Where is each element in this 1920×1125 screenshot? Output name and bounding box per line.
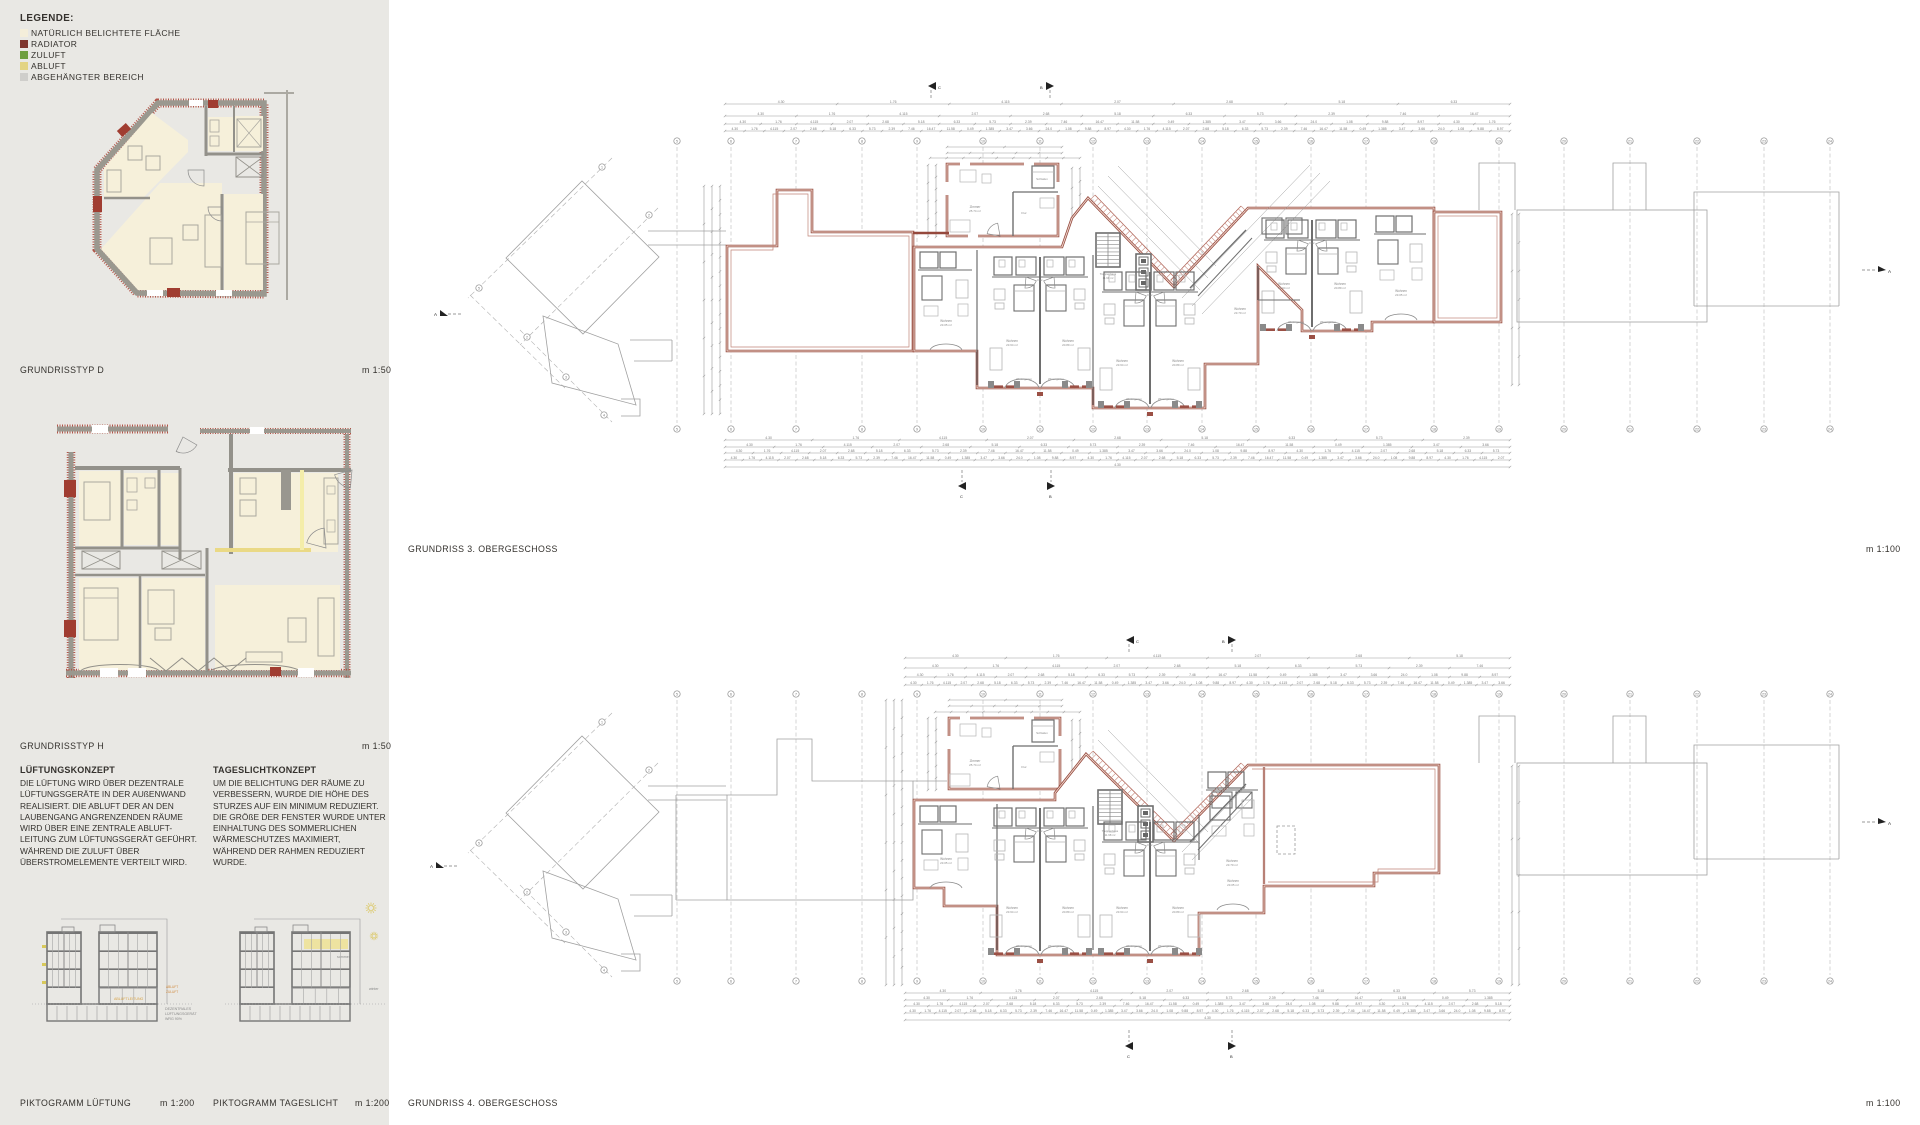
svg-text:16: 16 bbox=[1309, 692, 1313, 696]
svg-text:Schlafen: Schlafen bbox=[1036, 731, 1048, 735]
svg-text:1.76: 1.76 bbox=[1324, 449, 1331, 453]
svg-text:5.18: 5.18 bbox=[1437, 449, 1444, 453]
svg-text:1.76: 1.76 bbox=[751, 127, 758, 131]
svg-text:6.33: 6.33 bbox=[904, 449, 911, 453]
svg-text:2.39: 2.39 bbox=[1139, 443, 1146, 447]
svg-text:1.385: 1.385 bbox=[1318, 456, 1327, 460]
svg-text:2.68: 2.68 bbox=[848, 449, 855, 453]
svg-text:2.39: 2.39 bbox=[1099, 1002, 1106, 1006]
svg-text:2.68: 2.68 bbox=[1043, 112, 1050, 116]
svg-text:ZULUFT: ZULUFT bbox=[166, 990, 178, 994]
svg-text:24.0: 24.0 bbox=[1179, 681, 1186, 685]
svg-text:A: A bbox=[434, 312, 437, 317]
svg-text:11.58: 11.58 bbox=[1043, 449, 1051, 453]
svg-text:2.07: 2.07 bbox=[971, 112, 978, 116]
svg-text:2.68: 2.68 bbox=[1272, 1009, 1279, 1013]
svg-text:6.33: 6.33 bbox=[1011, 681, 1018, 685]
svg-text:24.0: 24.0 bbox=[1401, 673, 1408, 677]
svg-text:2.39: 2.39 bbox=[1025, 120, 1032, 124]
svg-text:4.30: 4.30 bbox=[746, 443, 753, 447]
svg-text:1.385: 1.385 bbox=[1105, 1009, 1114, 1013]
svg-text:2.07: 2.07 bbox=[1114, 100, 1121, 104]
svg-text:19: 19 bbox=[1497, 692, 1501, 696]
svg-text:2.39: 2.39 bbox=[1269, 996, 1276, 1000]
svg-text:4.30: 4.30 bbox=[939, 989, 946, 993]
svg-text:9: 9 bbox=[916, 692, 918, 696]
svg-text:2.07: 2.07 bbox=[820, 449, 827, 453]
svg-text:14: 14 bbox=[1200, 692, 1204, 696]
svg-text:24: 24 bbox=[1828, 979, 1832, 983]
svg-text:11.58: 11.58 bbox=[1131, 120, 1139, 124]
svg-text:9.88: 9.88 bbox=[1181, 1009, 1188, 1013]
svg-text:3.47: 3.47 bbox=[1239, 120, 1246, 124]
svg-text:4.115: 4.115 bbox=[1479, 456, 1487, 460]
svg-text:25.74 m²: 25.74 m² bbox=[969, 763, 981, 767]
svg-text:11.58: 11.58 bbox=[1430, 681, 1438, 685]
svg-text:5.18: 5.18 bbox=[1068, 673, 1075, 677]
svg-text:5.18: 5.18 bbox=[991, 443, 998, 447]
svg-text:1.08: 1.08 bbox=[1065, 127, 1072, 131]
svg-text:4.115: 4.115 bbox=[1279, 681, 1287, 685]
svg-text:0.49: 0.49 bbox=[1091, 1009, 1098, 1013]
svg-text:3.47: 3.47 bbox=[1006, 127, 1013, 131]
svg-text:1.08: 1.08 bbox=[1166, 1009, 1173, 1013]
svg-text:Flur: Flur bbox=[1021, 765, 1026, 769]
svg-text:23.05 m²: 23.05 m² bbox=[1395, 293, 1407, 297]
svg-text:1.76: 1.76 bbox=[748, 456, 755, 460]
svg-text:B: B bbox=[1230, 1054, 1233, 1059]
svg-text:1.76: 1.76 bbox=[1227, 1009, 1234, 1013]
svg-text:16.47: 16.47 bbox=[1218, 673, 1227, 677]
svg-text:23.64 m²: 23.64 m² bbox=[1116, 363, 1128, 367]
svg-text:24.0: 24.0 bbox=[1454, 1009, 1461, 1013]
svg-text:2.39: 2.39 bbox=[960, 449, 967, 453]
svg-text:16.47: 16.47 bbox=[1077, 681, 1086, 685]
svg-text:4.115: 4.115 bbox=[791, 449, 799, 453]
svg-text:23.05 m²: 23.05 m² bbox=[1227, 883, 1239, 887]
svg-text:23: 23 bbox=[1762, 427, 1766, 431]
svg-text:24.0: 24.0 bbox=[1438, 127, 1445, 131]
svg-text:8.97: 8.97 bbox=[1070, 456, 1077, 460]
svg-text:2.39: 2.39 bbox=[1159, 673, 1166, 677]
svg-text:16.47: 16.47 bbox=[1236, 443, 1245, 447]
svg-text:19: 19 bbox=[1497, 979, 1501, 983]
svg-text:1.385: 1.385 bbox=[1099, 449, 1108, 453]
svg-text:23.64 m²: 23.64 m² bbox=[1006, 343, 1018, 347]
svg-text:1.76: 1.76 bbox=[764, 449, 771, 453]
svg-text:5.73: 5.73 bbox=[1090, 443, 1097, 447]
svg-text:1.08: 1.08 bbox=[1212, 449, 1219, 453]
svg-text:7: 7 bbox=[795, 979, 797, 983]
svg-text:1.76: 1.76 bbox=[1462, 456, 1469, 460]
svg-text:7.46: 7.46 bbox=[908, 127, 915, 131]
svg-text:21: 21 bbox=[1628, 139, 1632, 143]
svg-text:1.76: 1.76 bbox=[1105, 456, 1112, 460]
svg-text:9.88: 9.88 bbox=[1213, 681, 1220, 685]
svg-text:2: 2 bbox=[648, 213, 650, 217]
svg-text:5.73: 5.73 bbox=[1493, 449, 1500, 453]
svg-text:2.39: 2.39 bbox=[1381, 681, 1388, 685]
svg-text:7.46: 7.46 bbox=[1061, 120, 1068, 124]
svg-text:2.68: 2.68 bbox=[882, 120, 889, 124]
svg-text:2.68: 2.68 bbox=[1355, 654, 1362, 658]
svg-text:4.30: 4.30 bbox=[765, 436, 772, 440]
svg-text:12: 12 bbox=[1091, 139, 1095, 143]
svg-text:DEZENTRALES: DEZENTRALES bbox=[165, 1007, 192, 1011]
svg-text:4.115: 4.115 bbox=[1241, 1009, 1249, 1013]
svg-text:5.18: 5.18 bbox=[1177, 456, 1184, 460]
svg-text:3.66: 3.66 bbox=[1498, 681, 1505, 685]
svg-text:5.18: 5.18 bbox=[1222, 127, 1229, 131]
svg-text:24: 24 bbox=[1828, 427, 1832, 431]
svg-text:13: 13 bbox=[1145, 979, 1149, 983]
svg-text:3.66: 3.66 bbox=[1136, 1009, 1143, 1013]
svg-text:5.18: 5.18 bbox=[985, 1009, 992, 1013]
svg-text:1.76: 1.76 bbox=[775, 120, 782, 124]
svg-text:7.46: 7.46 bbox=[1248, 456, 1255, 460]
svg-text:12: 12 bbox=[1091, 979, 1095, 983]
svg-text:1.385: 1.385 bbox=[1407, 1009, 1416, 1013]
svg-text:0.49: 0.49 bbox=[1442, 996, 1449, 1000]
svg-text:1.76: 1.76 bbox=[829, 112, 836, 116]
svg-text:5.73: 5.73 bbox=[1212, 456, 1219, 460]
svg-text:11.58: 11.58 bbox=[1249, 673, 1257, 677]
svg-text:20.89 m²: 20.89 m² bbox=[1062, 343, 1074, 347]
svg-text:1.76: 1.76 bbox=[947, 673, 954, 677]
svg-text:0.49: 0.49 bbox=[1301, 456, 1308, 460]
svg-text:3.66: 3.66 bbox=[1439, 1009, 1446, 1013]
svg-text:2.68: 2.68 bbox=[970, 1009, 977, 1013]
svg-text:2.07: 2.07 bbox=[1255, 654, 1262, 658]
svg-text:5.18: 5.18 bbox=[1030, 1002, 1037, 1006]
svg-text:20: 20 bbox=[1562, 692, 1566, 696]
svg-text:2.07: 2.07 bbox=[1448, 1002, 1455, 1006]
svg-text:3.66: 3.66 bbox=[998, 456, 1005, 460]
svg-text:0.49: 0.49 bbox=[1335, 443, 1342, 447]
svg-text:1.76: 1.76 bbox=[992, 664, 999, 668]
svg-text:23: 23 bbox=[1762, 139, 1766, 143]
svg-text:2.07: 2.07 bbox=[1113, 664, 1120, 668]
svg-text:9: 9 bbox=[916, 139, 918, 143]
svg-text:2.68: 2.68 bbox=[942, 443, 949, 447]
svg-text:3.66: 3.66 bbox=[1418, 127, 1425, 131]
svg-text:20.89 m²: 20.89 m² bbox=[1062, 910, 1074, 914]
svg-text:6.33: 6.33 bbox=[1186, 112, 1193, 116]
svg-text:9.88: 9.88 bbox=[1409, 456, 1416, 460]
svg-text:13: 13 bbox=[1145, 139, 1149, 143]
svg-text:C: C bbox=[938, 85, 941, 90]
svg-text:5.18: 5.18 bbox=[1139, 996, 1146, 1000]
svg-text:7.46: 7.46 bbox=[891, 456, 898, 460]
svg-text:6.33: 6.33 bbox=[1393, 989, 1400, 993]
svg-text:2.07: 2.07 bbox=[847, 120, 854, 124]
svg-text:16.47: 16.47 bbox=[1145, 1002, 1154, 1006]
svg-text:0.49: 0.49 bbox=[1072, 449, 1079, 453]
svg-text:11.58: 11.58 bbox=[1377, 1009, 1385, 1013]
svg-text:6.33: 6.33 bbox=[1289, 436, 1296, 440]
svg-text:2.07: 2.07 bbox=[1008, 673, 1015, 677]
svg-text:5.73: 5.73 bbox=[1226, 996, 1233, 1000]
svg-text:5: 5 bbox=[676, 692, 678, 696]
svg-text:4.30: 4.30 bbox=[913, 1002, 920, 1006]
svg-text:3.47: 3.47 bbox=[1128, 449, 1135, 453]
svg-text:6.33: 6.33 bbox=[1098, 673, 1105, 677]
svg-text:9.88: 9.88 bbox=[1332, 1002, 1339, 1006]
svg-text:4.30: 4.30 bbox=[932, 664, 939, 668]
svg-text:2.68: 2.68 bbox=[810, 127, 817, 131]
svg-text:3.66: 3.66 bbox=[1156, 449, 1163, 453]
svg-text:5.18: 5.18 bbox=[1318, 989, 1325, 993]
svg-text:15: 15 bbox=[1254, 979, 1258, 983]
svg-text:11: 11 bbox=[1038, 979, 1042, 983]
svg-text:23: 23 bbox=[1762, 979, 1766, 983]
svg-text:8.97: 8.97 bbox=[1499, 1009, 1506, 1013]
svg-text:1.76: 1.76 bbox=[852, 436, 859, 440]
svg-text:3.47: 3.47 bbox=[1340, 673, 1347, 677]
svg-text:17: 17 bbox=[1364, 692, 1368, 696]
svg-text:3.66: 3.66 bbox=[1355, 456, 1362, 460]
svg-text:2.07: 2.07 bbox=[1380, 449, 1387, 453]
svg-text:20: 20 bbox=[1562, 979, 1566, 983]
svg-text:11.58: 11.58 bbox=[1075, 1009, 1083, 1013]
svg-text:8.97: 8.97 bbox=[1268, 449, 1275, 453]
svg-text:23.05 m²: 23.05 m² bbox=[940, 323, 952, 327]
svg-text:21: 21 bbox=[1628, 427, 1632, 431]
svg-text:A: A bbox=[1888, 821, 1891, 826]
svg-text:2.39: 2.39 bbox=[888, 127, 895, 131]
svg-text:4.115: 4.115 bbox=[1052, 664, 1060, 668]
svg-text:2.39: 2.39 bbox=[1281, 127, 1288, 131]
svg-text:19: 19 bbox=[1497, 427, 1501, 431]
svg-text:Flur: Flur bbox=[1021, 211, 1026, 215]
svg-text:4.30: 4.30 bbox=[1444, 456, 1451, 460]
svg-text:20.89 m²: 20.89 m² bbox=[1172, 363, 1184, 367]
svg-text:16.47: 16.47 bbox=[908, 456, 917, 460]
svg-text:1.385: 1.385 bbox=[986, 127, 995, 131]
svg-text:21: 21 bbox=[1628, 692, 1632, 696]
svg-text:2.07: 2.07 bbox=[1027, 436, 1034, 440]
svg-text:7.46: 7.46 bbox=[1061, 681, 1068, 685]
svg-text:6.33: 6.33 bbox=[1347, 681, 1354, 685]
svg-text:12: 12 bbox=[1091, 427, 1095, 431]
svg-text:4.30: 4.30 bbox=[778, 100, 785, 104]
svg-text:7.46: 7.46 bbox=[1476, 664, 1483, 668]
svg-text:5.18: 5.18 bbox=[1495, 1002, 1502, 1006]
svg-text:5.73: 5.73 bbox=[1318, 1009, 1325, 1013]
svg-text:3.47: 3.47 bbox=[1121, 1009, 1128, 1013]
svg-text:19: 19 bbox=[1497, 139, 1501, 143]
svg-text:2.39: 2.39 bbox=[1416, 664, 1423, 668]
svg-text:Flur: Flur bbox=[1037, 278, 1042, 282]
svg-text:5.18: 5.18 bbox=[876, 449, 883, 453]
svg-text:3.66: 3.66 bbox=[1026, 127, 1033, 131]
svg-text:23.64 m²: 23.64 m² bbox=[1116, 910, 1128, 914]
svg-text:8.97: 8.97 bbox=[1492, 673, 1499, 677]
svg-text:5.73: 5.73 bbox=[855, 456, 862, 460]
svg-text:17: 17 bbox=[1364, 139, 1368, 143]
svg-text:2.07: 2.07 bbox=[1053, 996, 1060, 1000]
svg-text:4: 4 bbox=[603, 968, 605, 972]
svg-text:8.97: 8.97 bbox=[1417, 120, 1424, 124]
svg-text:14: 14 bbox=[1200, 139, 1204, 143]
svg-text:3.66: 3.66 bbox=[1275, 120, 1282, 124]
svg-text:16.47: 16.47 bbox=[1470, 112, 1479, 116]
svg-text:1.76: 1.76 bbox=[1053, 654, 1060, 658]
svg-text:0.49: 0.49 bbox=[1193, 1002, 1200, 1006]
svg-text:5.73: 5.73 bbox=[932, 449, 939, 453]
svg-text:1.08: 1.08 bbox=[1309, 1002, 1316, 1006]
svg-text:10: 10 bbox=[981, 692, 985, 696]
svg-text:1.08: 1.08 bbox=[1196, 681, 1203, 685]
svg-text:2.07: 2.07 bbox=[983, 1002, 990, 1006]
svg-text:9.88: 9.88 bbox=[1382, 120, 1389, 124]
svg-text:7.46: 7.46 bbox=[1397, 681, 1404, 685]
svg-text:3.47: 3.47 bbox=[1239, 1002, 1246, 1006]
svg-text:4.30: 4.30 bbox=[736, 449, 743, 453]
svg-text:4.30: 4.30 bbox=[952, 654, 959, 658]
svg-text:1.76: 1.76 bbox=[966, 996, 973, 1000]
svg-text:5.73: 5.73 bbox=[1469, 989, 1476, 993]
svg-text:B: B bbox=[1049, 494, 1052, 499]
svg-text:4.30: 4.30 bbox=[1212, 1009, 1219, 1013]
svg-text:8: 8 bbox=[861, 979, 863, 983]
svg-text:5.18: 5.18 bbox=[1338, 100, 1345, 104]
svg-text:1.76: 1.76 bbox=[927, 681, 934, 685]
svg-text:4.30: 4.30 bbox=[1379, 1002, 1386, 1006]
svg-text:7.46: 7.46 bbox=[1348, 1009, 1355, 1013]
svg-text:2.68: 2.68 bbox=[1159, 456, 1166, 460]
svg-text:0.49: 0.49 bbox=[967, 127, 974, 131]
svg-text:4.30: 4.30 bbox=[731, 127, 738, 131]
svg-text:1.76: 1.76 bbox=[1263, 681, 1270, 685]
svg-text:winter: winter bbox=[369, 987, 379, 991]
svg-text:5.73: 5.73 bbox=[1376, 436, 1383, 440]
svg-text:1: 1 bbox=[601, 720, 603, 724]
svg-text:16: 16 bbox=[1309, 427, 1313, 431]
svg-text:5.18: 5.18 bbox=[1234, 664, 1241, 668]
svg-text:9.88: 9.88 bbox=[1484, 1009, 1491, 1013]
svg-text:2.68: 2.68 bbox=[1114, 436, 1121, 440]
svg-text:0.49: 0.49 bbox=[1359, 127, 1366, 131]
svg-text:2.68: 2.68 bbox=[1006, 1002, 1013, 1006]
svg-text:2.07: 2.07 bbox=[1257, 1009, 1264, 1013]
svg-text:LÜFTUNGSGERÄT: LÜFTUNGSGERÄT bbox=[165, 1012, 198, 1016]
svg-text:5.73: 5.73 bbox=[1261, 127, 1268, 131]
svg-text:3: 3 bbox=[565, 930, 567, 934]
svg-text:4.115: 4.115 bbox=[1162, 127, 1170, 131]
svg-text:2.68: 2.68 bbox=[1202, 127, 1209, 131]
svg-text:9.88: 9.88 bbox=[1085, 127, 1092, 131]
svg-text:4.30: 4.30 bbox=[917, 673, 924, 677]
svg-text:4.30: 4.30 bbox=[1296, 449, 1303, 453]
svg-text:1.385: 1.385 bbox=[1128, 681, 1137, 685]
svg-text:4.30: 4.30 bbox=[731, 456, 738, 460]
svg-text:3.66: 3.66 bbox=[1162, 681, 1169, 685]
svg-text:1.08: 1.08 bbox=[1391, 456, 1398, 460]
svg-text:2.07: 2.07 bbox=[955, 1009, 962, 1013]
svg-text:0.49: 0.49 bbox=[1448, 681, 1455, 685]
svg-text:7.46: 7.46 bbox=[1189, 673, 1196, 677]
svg-text:3.47: 3.47 bbox=[1423, 1009, 1430, 1013]
svg-text:3.47: 3.47 bbox=[1145, 681, 1152, 685]
svg-text:3.47: 3.47 bbox=[980, 456, 987, 460]
svg-text:2.39: 2.39 bbox=[1463, 436, 1470, 440]
svg-text:3.66: 3.66 bbox=[1262, 1002, 1269, 1006]
svg-text:4.30: 4.30 bbox=[1453, 120, 1460, 124]
svg-text:5.18: 5.18 bbox=[918, 120, 925, 124]
svg-text:Flur: Flur bbox=[1147, 843, 1152, 847]
svg-text:ABLUFTLEITUNG: ABLUFTLEITUNG bbox=[114, 997, 144, 1001]
svg-text:2.07: 2.07 bbox=[1166, 989, 1173, 993]
svg-text:7: 7 bbox=[795, 139, 797, 143]
svg-text:17: 17 bbox=[1364, 427, 1368, 431]
svg-text:2.07: 2.07 bbox=[1498, 456, 1505, 460]
svg-text:7.46: 7.46 bbox=[1045, 1009, 1052, 1013]
svg-text:1.385: 1.385 bbox=[1215, 1002, 1224, 1006]
svg-text:5.18: 5.18 bbox=[1456, 654, 1463, 658]
svg-text:9: 9 bbox=[916, 979, 918, 983]
svg-text:6.33: 6.33 bbox=[1194, 456, 1201, 460]
svg-text:23.05 m²: 23.05 m² bbox=[940, 861, 952, 865]
svg-text:5.73: 5.73 bbox=[1076, 1002, 1083, 1006]
svg-text:25.74 m²: 25.74 m² bbox=[969, 209, 981, 213]
svg-text:0.49: 0.49 bbox=[1168, 120, 1175, 124]
svg-text:2.39: 2.39 bbox=[873, 456, 880, 460]
svg-text:16.47: 16.47 bbox=[1355, 996, 1364, 1000]
svg-text:1.385: 1.385 bbox=[962, 456, 971, 460]
svg-text:4.115: 4.115 bbox=[810, 120, 818, 124]
svg-text:2.68: 2.68 bbox=[1409, 449, 1416, 453]
svg-text:24.0: 24.0 bbox=[1310, 120, 1317, 124]
svg-text:16.47: 16.47 bbox=[1362, 1009, 1371, 1013]
svg-text:Flur: Flur bbox=[1037, 829, 1042, 833]
svg-text:7.46: 7.46 bbox=[1312, 996, 1319, 1000]
svg-text:4.115: 4.115 bbox=[939, 436, 947, 440]
svg-text:11: 11 bbox=[1038, 427, 1042, 431]
svg-text:8.97: 8.97 bbox=[1229, 681, 1236, 685]
svg-text:6: 6 bbox=[730, 692, 732, 696]
svg-text:3.47: 3.47 bbox=[1481, 681, 1488, 685]
svg-text:22: 22 bbox=[1695, 427, 1699, 431]
svg-text:1.76: 1.76 bbox=[937, 1002, 944, 1006]
svg-text:6: 6 bbox=[730, 139, 732, 143]
svg-text:20.89 m²: 20.89 m² bbox=[1334, 286, 1346, 290]
svg-text:2.68: 2.68 bbox=[1313, 681, 1320, 685]
svg-text:5: 5 bbox=[676, 427, 678, 431]
svg-text:2.68: 2.68 bbox=[1096, 996, 1103, 1000]
svg-text:23.64 m²: 23.64 m² bbox=[1006, 910, 1018, 914]
svg-text:5.73: 5.73 bbox=[1355, 664, 1362, 668]
svg-text:9: 9 bbox=[916, 427, 918, 431]
svg-text:1.08: 1.08 bbox=[1458, 127, 1465, 131]
svg-text:C: C bbox=[1136, 639, 1139, 644]
svg-text:6.33: 6.33 bbox=[1183, 996, 1190, 1000]
svg-text:4.115: 4.115 bbox=[899, 112, 907, 116]
svg-text:4.115: 4.115 bbox=[1153, 654, 1161, 658]
svg-text:5.18: 5.18 bbox=[1201, 436, 1208, 440]
svg-text:16.47: 16.47 bbox=[1015, 449, 1024, 453]
svg-text:4.30: 4.30 bbox=[1114, 463, 1121, 467]
svg-text:1.76: 1.76 bbox=[1144, 127, 1151, 131]
svg-text:6.33: 6.33 bbox=[1302, 1009, 1309, 1013]
svg-text:B: B bbox=[1222, 639, 1225, 644]
svg-text:4.30: 4.30 bbox=[1204, 1016, 1211, 1020]
svg-text:2.39: 2.39 bbox=[1030, 1009, 1037, 1013]
svg-text:3.66: 3.66 bbox=[1482, 443, 1489, 447]
svg-text:16.47: 16.47 bbox=[927, 127, 936, 131]
svg-text:5.73: 5.73 bbox=[869, 127, 876, 131]
svg-text:4.115: 4.115 bbox=[770, 127, 778, 131]
